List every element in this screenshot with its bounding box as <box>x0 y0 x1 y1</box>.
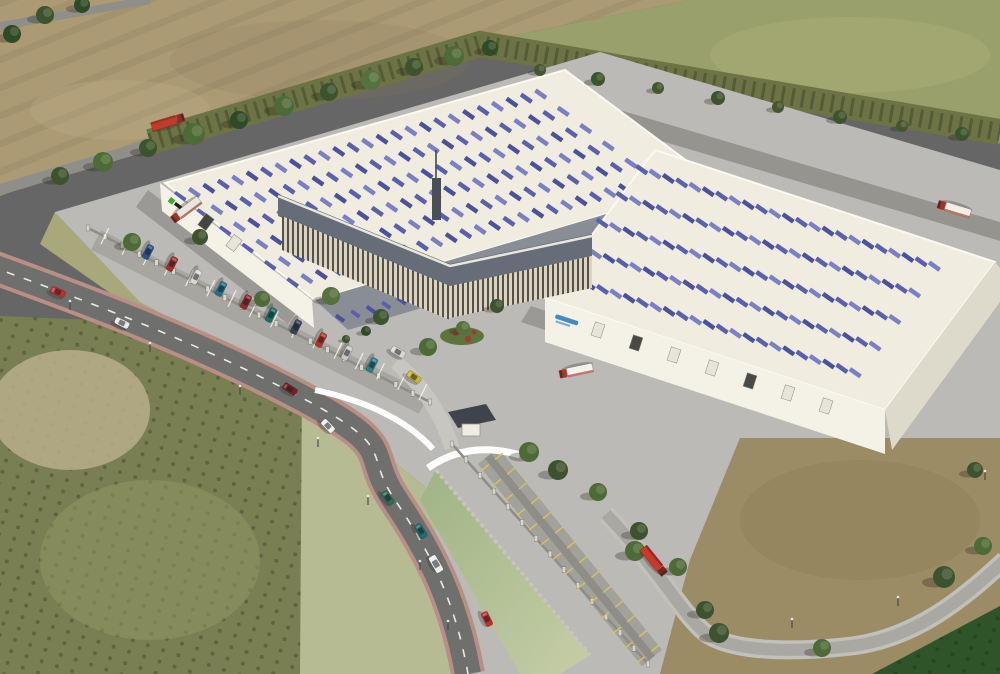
dirt-patch <box>740 460 980 580</box>
office-tower <box>432 178 441 220</box>
scene-svg <box>0 0 1000 674</box>
flower-red-2 <box>465 336 471 342</box>
gatehouse-booth <box>462 424 480 436</box>
rendering-stage <box>0 0 1000 674</box>
flower-red-3 <box>472 330 477 335</box>
grass-patch <box>40 480 260 640</box>
tree <box>528 64 546 76</box>
